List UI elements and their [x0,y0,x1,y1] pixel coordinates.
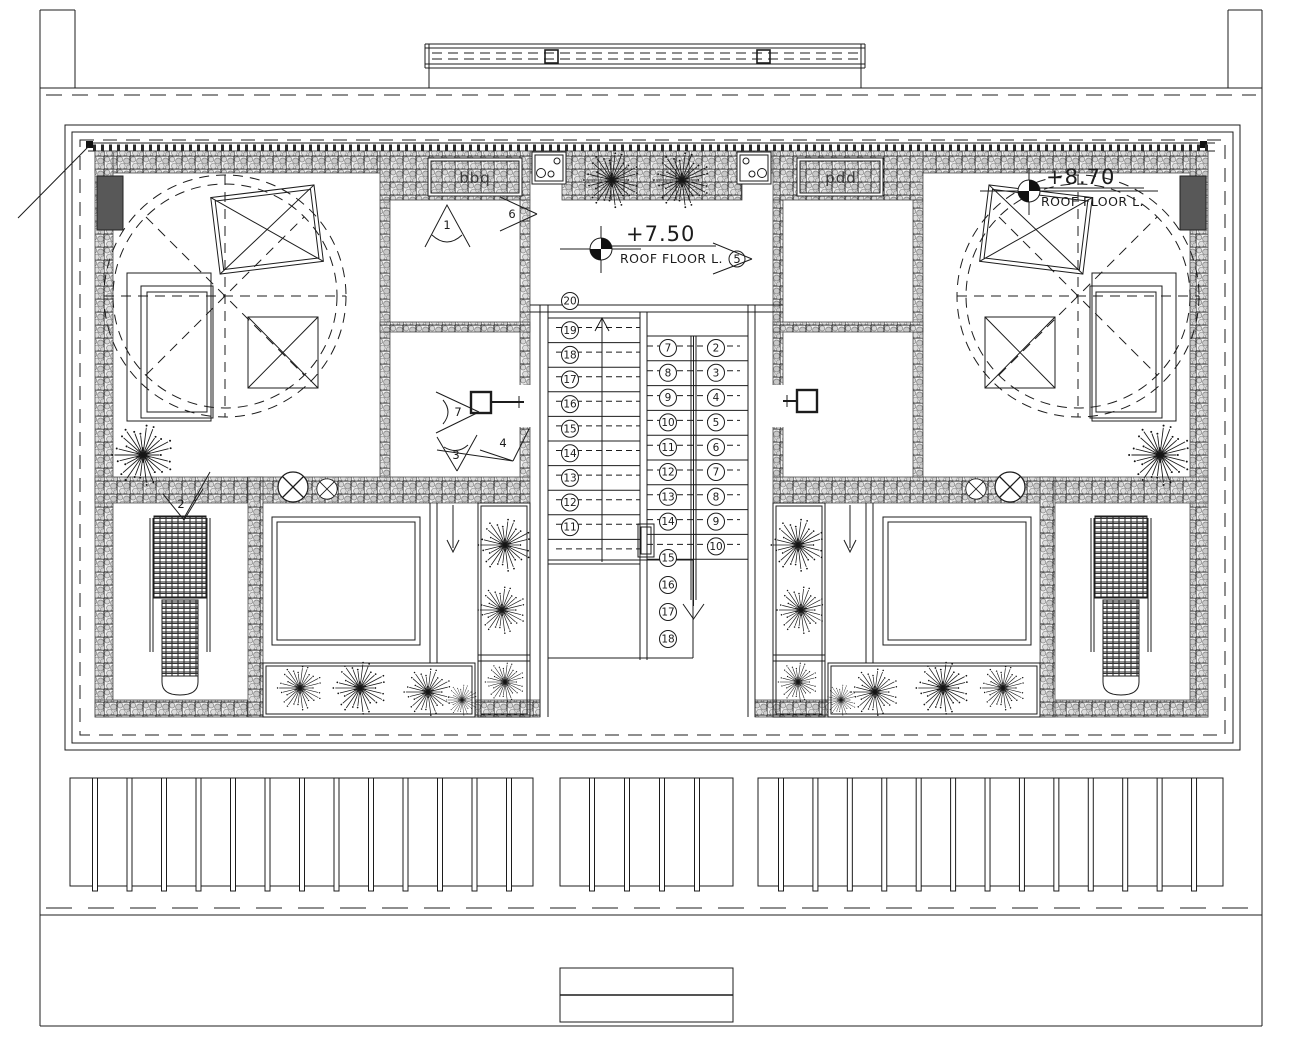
pergola-slat [695,778,700,891]
railing-tick [533,145,536,152]
railing-tick [1045,145,1048,152]
railing-tick [373,145,376,152]
svg-text:18: 18 [661,634,674,646]
svg-text:2: 2 [177,497,184,511]
railing-tick [269,145,272,152]
railing-tick [653,145,656,152]
railing-tick [1205,145,1208,152]
railing-tick [381,145,384,152]
svg-text:7: 7 [713,467,720,479]
railing-tick [221,145,224,152]
stair-step-number: 16 [562,396,579,413]
level-marker-center: +7.50 ROOF FLOOR L. [560,222,723,273]
bbq-right-label: bbq [824,169,856,187]
svg-text:18: 18 [563,350,576,362]
railing-tick [933,145,936,152]
svg-text:7: 7 [454,405,461,419]
railing-tick [285,145,288,152]
railing-tick [917,145,920,152]
level-right-label: ROOF FLOOR L. [1041,194,1144,209]
svg-text:2: 2 [713,343,720,355]
railing-tick [93,145,96,152]
stair-step-number: 2 [708,340,725,357]
railing-tick [261,145,264,152]
railing-tick [309,145,312,152]
railing-tick [1093,145,1096,152]
svg-text:17: 17 [661,607,674,619]
level-center-label: ROOF FLOOR L. [620,251,723,266]
svg-text:16: 16 [563,399,577,411]
railing-tick [813,145,816,152]
column [1180,176,1206,230]
railing-tick [1181,145,1184,152]
svg-text:3: 3 [713,367,720,379]
stair-step-number: 16 [660,577,677,594]
plant [477,519,529,572]
svg-text:11: 11 [563,522,576,534]
stair-step-number: 5 [708,414,725,431]
level-right-value: +8.70 [1046,165,1115,189]
pergola-slat [507,778,512,891]
railing-tick [165,145,168,152]
railing-tick [301,145,304,152]
railing-tick [997,145,1000,152]
railing-tick [461,145,464,152]
railing-tick [517,145,520,152]
stair-step-number: 6 [708,439,725,456]
corner-dot [86,141,93,148]
railing-tick [117,145,120,152]
railing-tick [765,145,768,152]
railing-tick [157,145,160,152]
pergola-slat [1054,778,1059,891]
pergola-slat [660,778,665,891]
stair-step-number: 10 [708,538,725,555]
svg-text:3: 3 [452,448,459,462]
bottom-entry-steps [560,968,733,1022]
svg-text:11: 11 [661,442,674,454]
railing-tick [333,145,336,152]
stair-step-number: 18 [660,631,677,648]
railing-tick [645,145,648,152]
railing-tick [1189,145,1192,152]
pergola-slat [93,778,98,891]
railing-tick [125,145,128,152]
railing-tick [949,145,952,152]
railing-tick [1029,145,1032,152]
railing-tick [405,145,408,152]
railing-tick [213,145,216,152]
railing-tick [869,145,872,152]
railing-tick [957,145,960,152]
railing-tick [277,145,280,152]
svg-text:10: 10 [709,541,722,553]
plant [776,587,823,634]
svg-text:6: 6 [508,207,515,221]
railing-tick [909,145,912,152]
stair-step-number: 9 [708,513,725,530]
railing-tick [725,145,728,152]
pergola-slat [590,778,595,891]
railing-tick [893,145,896,152]
pergola-slat [1123,778,1128,891]
svg-text:6: 6 [713,442,720,454]
railing-tick [445,145,448,152]
column [97,176,123,230]
railing-tick [1173,145,1176,152]
pergola-slat [472,778,477,891]
railing-tick [629,145,632,152]
railing-tick [349,145,352,152]
railing-tick [549,145,552,152]
railing-tick [973,145,976,152]
pergola-slat [951,778,956,891]
railing-tick [397,145,400,152]
railing-tick [1077,145,1080,152]
railing-tick [1141,145,1144,152]
railing-tick [293,145,296,152]
railing-tick [365,145,368,152]
stair-step-number: 19 [562,322,579,339]
stair-step-number: 9 [660,389,677,406]
pergola-slat [779,778,784,891]
circle-x-symbol [995,472,1025,502]
view-marker-4: 4 [437,429,529,461]
railing-tick [701,145,704,152]
circle-x-symbol [966,479,986,499]
sunbed [150,516,210,695]
railing-tick [1005,145,1008,152]
beam-fixture [545,50,558,63]
railing-tick [773,145,776,152]
railing-tick [693,145,696,152]
stair-step-number: 13 [660,488,677,505]
stair-step-number: 18 [562,346,579,363]
railing-tick [253,145,256,152]
leader-line [18,146,89,218]
railing-tick [1117,145,1120,152]
railing-tick [685,145,688,152]
railing-tick [357,145,360,152]
pergola-slat [196,778,201,891]
svg-text:4: 4 [713,392,720,404]
railing-tick [1085,145,1088,152]
svg-text:1: 1 [443,218,450,232]
svg-text:9: 9 [713,516,720,528]
railing-tick [197,145,200,152]
railing-tick [413,145,416,152]
svg-text:20: 20 [563,296,576,308]
railing-tick [229,145,232,152]
railing-tick [741,145,744,152]
stair-step-number: 11 [562,519,579,536]
pergola-slat [1157,778,1162,891]
stair-step-number: 7 [708,464,725,481]
railing-tick [1109,145,1112,152]
railing-tick [821,145,824,152]
railing-tick [901,145,904,152]
railing-tick [453,145,456,152]
plant [485,663,523,702]
pergola-slat [334,778,339,891]
railing-tick [1013,145,1016,152]
view-marker-1: 1 [425,205,470,247]
railing-tick [1037,145,1040,152]
stair-step-number: 8 [708,488,725,505]
pergola-slat [300,778,305,891]
railing-tick [477,145,480,152]
stair-step-number: 20 [562,293,579,310]
railing-tick [525,145,528,152]
railing-tick [781,145,784,152]
pergola-slat [162,778,167,891]
svg-text:10: 10 [661,417,674,429]
railing-tick [589,145,592,152]
stair-step-number: 15 [660,550,677,567]
railing-tick [789,145,792,152]
svg-text:4: 4 [499,436,506,450]
stair-step-number: 13 [562,469,579,486]
pergola-slat [882,778,887,891]
railing-tick [733,145,736,152]
railing-tick [565,145,568,152]
pergola-slat [1088,778,1093,891]
svg-text:12: 12 [563,497,576,509]
bbq-left-label: bbq [459,169,491,187]
level-center-value: +7.50 [626,222,695,246]
railing-tick [133,145,136,152]
railing-tick [661,145,664,152]
stair-step-number: 17 [660,604,677,621]
pergola-slat [231,778,236,891]
stair-step-number: 8 [660,364,677,381]
railing-tick [605,145,608,152]
railing-tick [1197,145,1200,152]
railing-tick [509,145,512,152]
plan-borders [65,125,1240,750]
left-terrace-circle [104,175,346,421]
stair-step-number: 15 [562,420,579,437]
stair-step-number: 12 [660,464,677,481]
railing-tick [181,145,184,152]
railing-tick [141,145,144,152]
bottom-pergola [46,778,1256,908]
railing-tick [501,145,504,152]
pergola-slat [438,778,443,891]
railing-tick [101,145,104,152]
railing-tick [429,145,432,152]
plant [477,587,524,634]
railing-tick [989,145,992,152]
railing-tick [925,145,928,152]
railing-tick [853,145,856,152]
railing-tick [1149,145,1152,152]
svg-text:14: 14 [661,516,675,528]
railing-tick [941,145,944,152]
railing-tick [237,145,240,152]
pergola-slat [625,778,630,891]
circle-x-symbol [278,472,308,502]
plant [770,519,822,572]
railing-tick [677,145,680,152]
svg-text:15: 15 [661,553,674,565]
pergola-slat [127,778,132,891]
pergola-slat [403,778,408,891]
railing-tick [637,145,640,152]
railing-tick [845,145,848,152]
railing-tick [437,145,440,152]
railing-tick [573,145,576,152]
stair-step-number: 12 [562,494,579,511]
railing-tick [757,145,760,152]
railing-tick [1125,145,1128,152]
beam-fixture [757,50,770,63]
svg-text:5: 5 [733,252,740,266]
railing-tick [837,145,840,152]
svg-text:15: 15 [563,423,576,435]
railing-tick [205,145,208,152]
svg-text:7: 7 [665,343,672,355]
stair-step-number: 14 [562,445,579,462]
railing-tick [173,145,176,152]
railing-tick [1165,145,1168,152]
railing-tick [669,145,672,152]
railing-tick [389,145,392,152]
railing-tick [485,145,488,152]
stair-step-number: 4 [708,389,725,406]
railing-tick [325,145,328,152]
railing-tick [885,145,888,152]
railing-tick [797,145,800,152]
railing-tick [109,145,112,152]
railing-tick [621,145,624,152]
pergola-slat [1019,778,1024,891]
railing-tick [557,145,560,152]
stair-step-number: 14 [660,513,677,530]
railing-tick [877,145,880,152]
railing-tick [541,145,544,152]
pergola-slat [985,778,990,891]
pergola-slat [847,778,852,891]
sunbed [1091,516,1151,695]
railing-tick [581,145,584,152]
railing-tick [149,145,152,152]
railing-tick [1101,145,1104,152]
svg-text:5: 5 [713,417,720,429]
railing-tick [981,145,984,152]
railing-tick [341,145,344,152]
railing-tick [597,145,600,152]
pergola-slat [265,778,270,891]
pergola-slat [916,778,921,891]
svg-text:12: 12 [661,467,674,479]
railing-tick [245,145,248,152]
railing-tick [1061,145,1064,152]
railing-tick [1069,145,1072,152]
top-pergola-beam [425,44,865,88]
railing-tick [469,145,472,152]
svg-text:13: 13 [661,491,674,503]
pergola-slat [813,778,818,891]
railing-tick [965,145,968,152]
svg-text:8: 8 [713,491,720,503]
railing-tick [1021,145,1024,152]
railing-tick [1133,145,1136,152]
svg-text:9: 9 [665,392,672,404]
railing-tick [1157,145,1160,152]
svg-text:16: 16 [661,580,675,592]
railing-tick [317,145,320,152]
railing-tick [861,145,864,152]
stair-step-number: 10 [660,414,677,431]
svg-text:8: 8 [665,367,672,379]
railing-tick [805,145,808,152]
railing-tick [709,145,712,152]
floor-plan-canvas: bbq bbq [0,0,1303,1059]
svg-text:19: 19 [563,325,576,337]
stair-step-number: 11 [660,439,677,456]
circle-x-symbol [317,479,337,499]
plant [778,663,816,702]
pergola-slat [369,778,374,891]
railing-tick [749,145,752,152]
railing-tick [829,145,832,152]
view-marker-6: 6 [500,197,537,231]
railing-tick [1053,145,1056,152]
railing-tick [613,145,616,152]
stair-step-number: 7 [660,340,677,357]
railing-tick [421,145,424,152]
railing-tick [189,145,192,152]
pergola-slat [1192,778,1197,891]
right-terrace-circle [957,175,1199,421]
railing-tick [493,145,496,152]
svg-text:13: 13 [563,473,576,485]
svg-text:14: 14 [563,448,577,460]
railing-tick [717,145,720,152]
stair-step-number: 17 [562,371,579,388]
stair-step-number: 3 [708,364,725,381]
svg-text:17: 17 [563,374,576,386]
